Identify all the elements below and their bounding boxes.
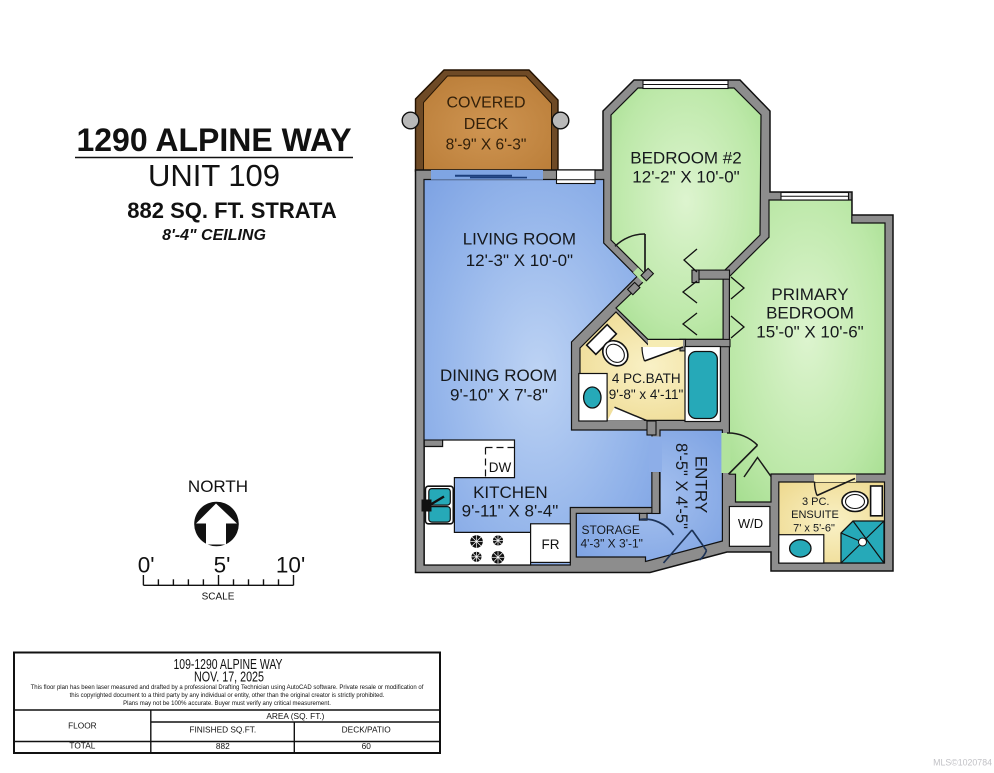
svg-text:0': 0': [138, 553, 155, 578]
svg-text:4'-3" X 3'-1": 4'-3" X 3'-1": [580, 537, 642, 551]
svg-text:9'-10" X 7'-8": 9'-10" X 7'-8": [450, 386, 548, 405]
svg-text:8'-4" CEILING: 8'-4" CEILING: [162, 227, 266, 244]
svg-text:BEDROOM #2: BEDROOM #2: [630, 149, 741, 168]
svg-text:KITCHEN: KITCHEN: [473, 483, 548, 502]
svg-text:12'-2" X 10'-0": 12'-2" X 10'-0": [632, 168, 739, 187]
svg-text:8'-9" X 6'-3": 8'-9" X 6'-3": [446, 137, 527, 154]
svg-text:DINING ROOM: DINING ROOM: [440, 366, 557, 385]
svg-text:882: 882: [216, 741, 230, 751]
svg-text:DECK: DECK: [464, 116, 509, 133]
svg-text:FR: FR: [542, 537, 560, 552]
svg-text:15'-0" X 10'-6": 15'-0" X 10'-6": [756, 323, 863, 342]
svg-text:60: 60: [362, 741, 372, 751]
svg-text:NOV. 17, 2025: NOV. 17, 2025: [194, 670, 264, 686]
svg-text:9'-8" x 4'-11": 9'-8" x 4'-11": [609, 387, 684, 402]
svg-text:BEDROOM: BEDROOM: [766, 304, 854, 323]
svg-text:W/D: W/D: [738, 516, 763, 531]
svg-text:FINISHED SQ.FT.: FINISHED SQ.FT.: [189, 725, 256, 735]
svg-text:MLS©1020784: MLS©1020784: [933, 758, 992, 768]
svg-text:COVERED: COVERED: [446, 95, 525, 112]
svg-text:5': 5': [214, 553, 231, 578]
svg-text:8'-5" X 4'-5": 8'-5" X 4'-5": [672, 443, 690, 529]
svg-text:ENTRY: ENTRY: [692, 456, 711, 513]
svg-text:PRIMARY: PRIMARY: [771, 285, 848, 304]
svg-text:DECK/PATIO: DECK/PATIO: [342, 725, 392, 735]
svg-text:NORTH: NORTH: [188, 477, 248, 496]
svg-text:STORAGE: STORAGE: [581, 523, 639, 537]
svg-text:9'-11" X 8'-4": 9'-11" X 8'-4": [462, 502, 559, 521]
svg-text:this copyrighted document to a: this copyrighted document to a third par…: [70, 693, 385, 699]
svg-text:TOTAL: TOTAL: [69, 740, 95, 750]
svg-text:SCALE: SCALE: [202, 592, 235, 603]
svg-text:This floor plan has been laser: This floor plan has been laser measured …: [31, 685, 424, 691]
svg-text:10': 10': [276, 553, 305, 578]
svg-text:FLOOR: FLOOR: [68, 720, 97, 730]
svg-text:12'-3" X 10'-0": 12'-3" X 10'-0": [466, 251, 573, 270]
svg-text:UNIT 109: UNIT 109: [148, 158, 280, 193]
svg-text:AREA (SQ. FT.): AREA (SQ. FT.): [266, 711, 324, 721]
svg-text:1290 ALPINE WAY: 1290 ALPINE WAY: [76, 122, 351, 158]
svg-text:DW: DW: [489, 460, 512, 475]
svg-text:ENSUITE: ENSUITE: [791, 509, 839, 521]
svg-text:4 PC.BATH: 4 PC.BATH: [612, 371, 681, 386]
svg-text:3 PC.: 3 PC.: [802, 496, 830, 508]
svg-text:882 SQ. FT. STRATA: 882 SQ. FT. STRATA: [127, 198, 337, 223]
svg-text:Plans may not be 100% accurate: Plans may not be 100% accurate. Buyer mu…: [123, 701, 331, 707]
svg-text:LIVING ROOM: LIVING ROOM: [463, 230, 576, 249]
svg-text:7' x 5'-6": 7' x 5'-6": [793, 523, 835, 535]
